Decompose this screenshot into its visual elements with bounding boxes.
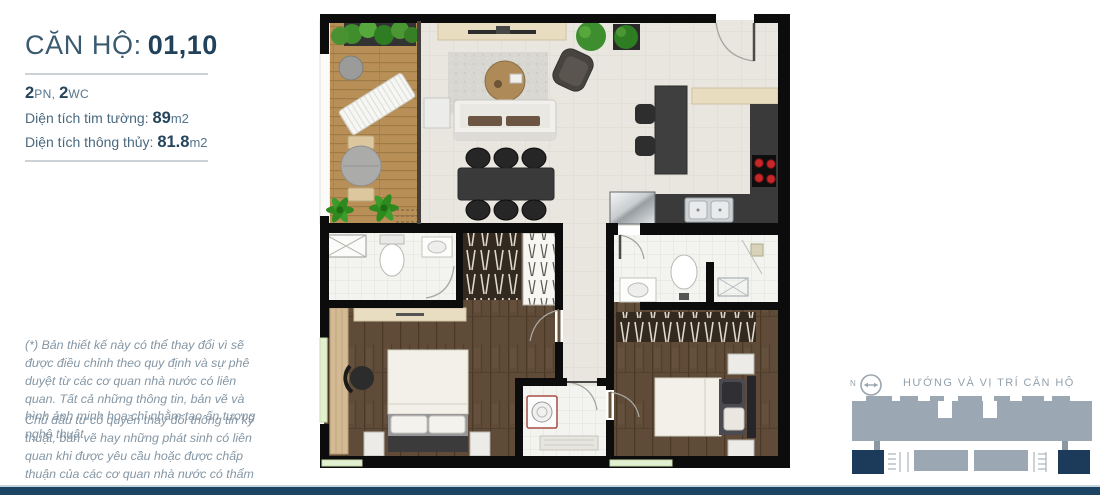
wc-count: 2: [59, 84, 68, 102]
building-location-diagram: [852, 396, 1092, 474]
nightstand: [470, 432, 490, 456]
floorplan: [310, 8, 795, 478]
divider-top: [25, 73, 208, 75]
unit-block: [914, 450, 968, 471]
compass-icon: [858, 372, 884, 398]
location-heading: HƯỚNG VÀ VỊ TRÍ CĂN HỘ: [903, 377, 1075, 389]
floorplan-page: CĂN HỘ:01,10 2PN, 2WC Diện tích tim tườn…: [0, 0, 1100, 495]
pillow: [391, 416, 427, 433]
bed: [655, 376, 756, 438]
bottom-bar-accent: [0, 487, 1100, 495]
bedroom-count: 2: [25, 84, 34, 102]
wc-label: WC: [68, 87, 89, 101]
divider-bottom: [25, 160, 208, 162]
disclaimer-paragraph-2: Chủ đầu tư có quyền thay đổi thông tin k…: [25, 412, 268, 495]
window-strip: [610, 460, 672, 466]
page-title: CĂN HỘ:01,10: [25, 30, 218, 61]
toilet: [380, 244, 404, 276]
highlighted-unit-10: [1058, 450, 1090, 474]
window-strip: [322, 460, 362, 466]
pillow: [724, 408, 744, 430]
highlighted-unit-01: [852, 450, 884, 474]
balcony-chair: [348, 188, 374, 201]
compass-north-label: N: [850, 379, 856, 388]
unit-block: [974, 450, 1028, 471]
bench: [540, 436, 598, 450]
dining-table: [458, 168, 554, 200]
wardrobe-2: [616, 312, 756, 342]
pillow: [722, 382, 742, 404]
nightstand: [364, 432, 384, 456]
kitchen-counter: [692, 88, 778, 104]
net-area-label: Diện tích thông thủy:: [25, 134, 157, 150]
fridge: [610, 192, 655, 224]
shower-fixture: [751, 244, 763, 256]
nightstand: [728, 354, 754, 374]
wardrobe-1: [463, 233, 555, 305]
unit-title-value: 01,10: [148, 30, 218, 60]
unit-title-label: CĂN HỘ:: [25, 30, 142, 60]
kitchen-island: [655, 86, 687, 174]
net-area-unit: m2: [189, 135, 207, 150]
kitchen-counter: [750, 104, 778, 204]
toilet: [671, 255, 697, 289]
rooms-line: 2PN, 2WC: [25, 84, 89, 103]
bed: [388, 350, 468, 452]
pillow: [429, 416, 465, 433]
kitchen-sink: [685, 198, 733, 222]
desk-chair: [350, 366, 374, 390]
bar-stool: [635, 136, 655, 156]
side-table: [424, 98, 450, 128]
sofa: [454, 100, 556, 140]
gross-area-unit: m2: [171, 111, 189, 126]
bar-stool: [635, 104, 655, 124]
gross-area-line: Diện tích tim tường: 89m2: [25, 109, 189, 128]
gross-area-value: 89: [152, 109, 170, 127]
net-area-value: 81.8: [157, 133, 189, 151]
stool: [339, 56, 363, 80]
building-outline: [852, 396, 1092, 441]
plant-icon: [576, 21, 606, 51]
gross-area-label: Diện tích tim tường:: [25, 110, 152, 126]
plant-icon: [331, 27, 349, 45]
bedroom-label: PN,: [34, 87, 59, 101]
net-area-line: Diện tích thông thủy: 81.8m2: [25, 133, 208, 152]
window-strip: [320, 338, 327, 422]
dining-set: [458, 148, 554, 220]
